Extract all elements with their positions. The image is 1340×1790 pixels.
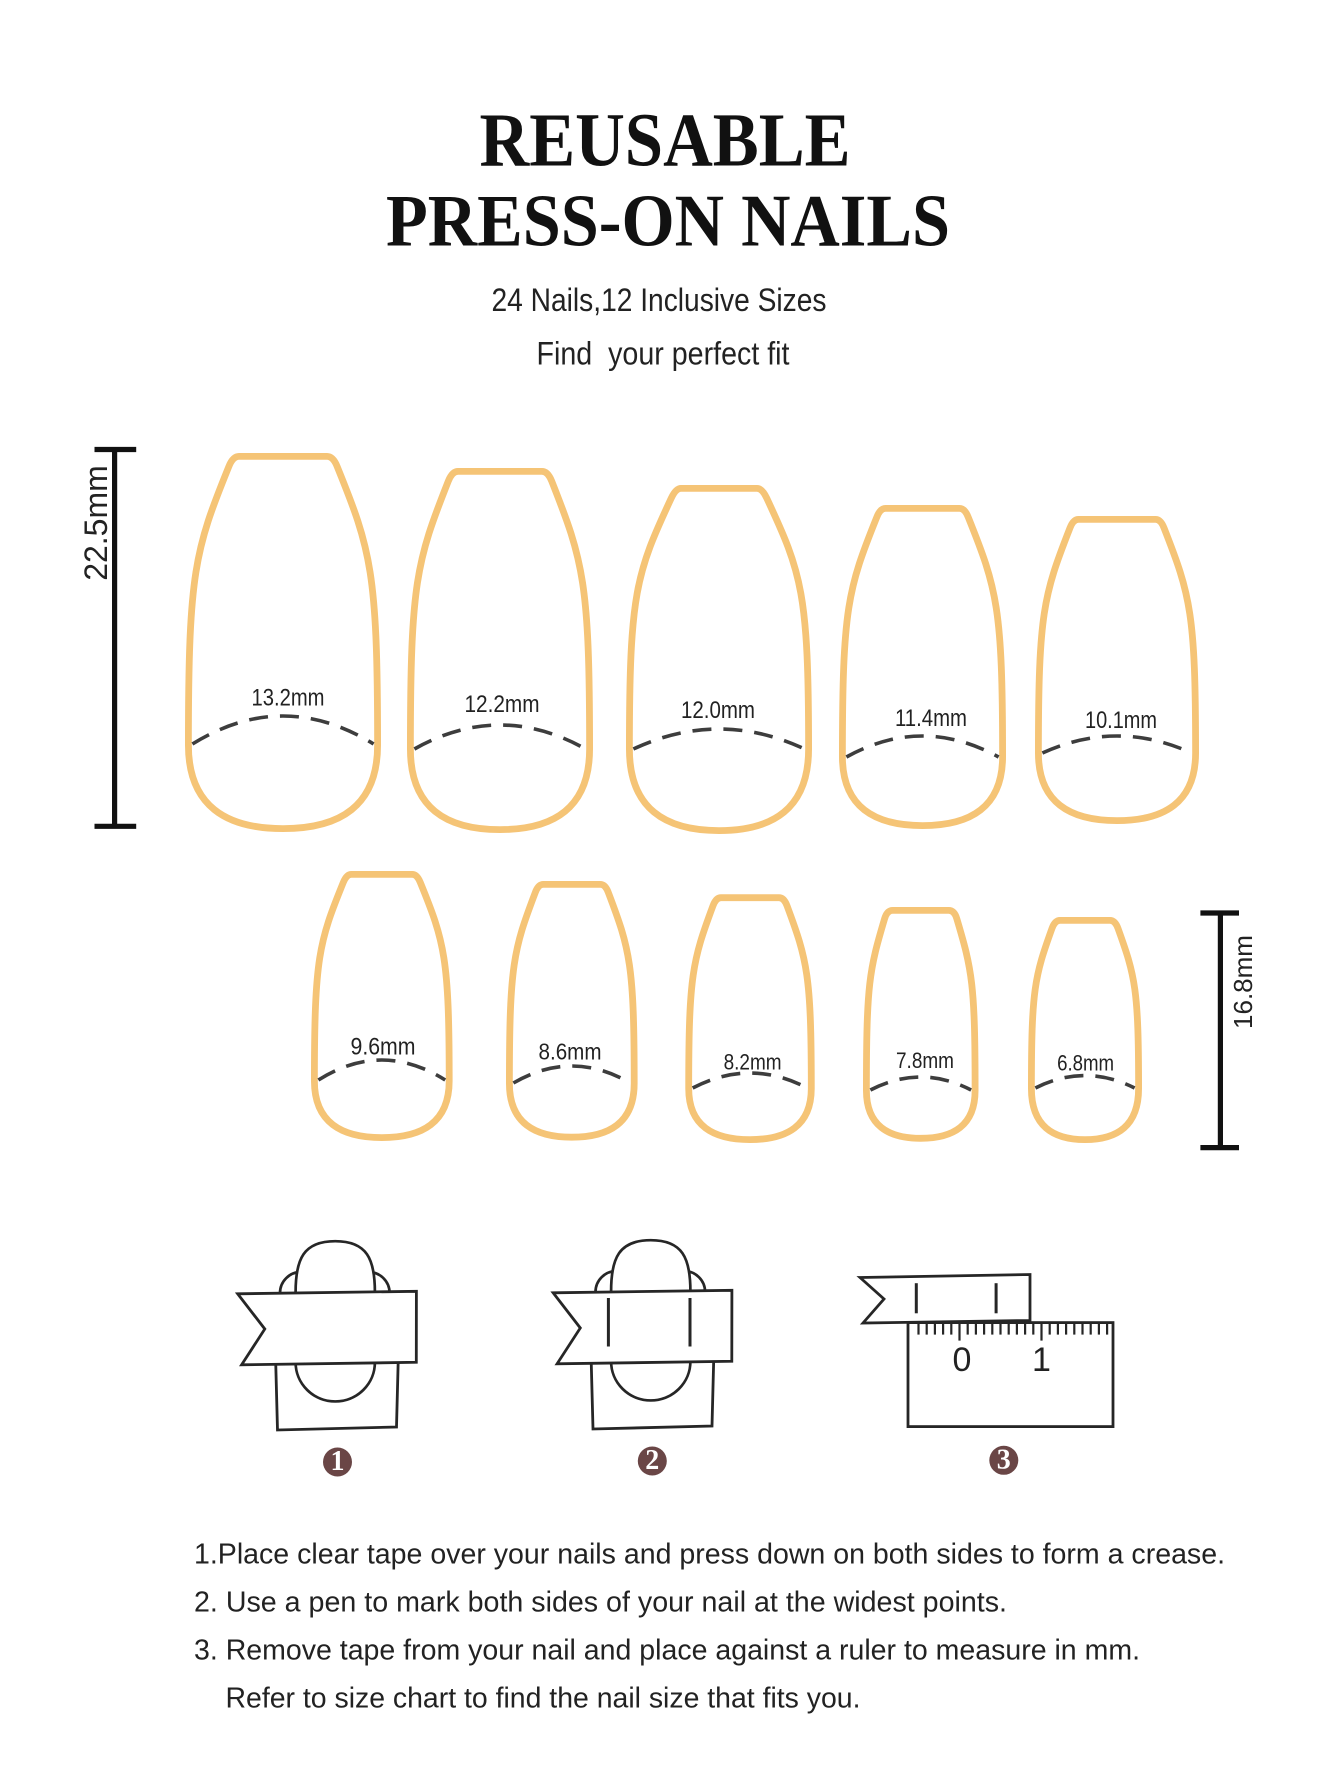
- svg-text:8.2mm: 8.2mm: [724, 1049, 782, 1074]
- svg-text:0: 0: [953, 1341, 972, 1379]
- svg-text:3: 3: [997, 1445, 1011, 1476]
- svg-text:10.1mm: 10.1mm: [1085, 707, 1157, 734]
- svg-text:3. Remove tape from your nail: 3. Remove tape from your nail and place …: [194, 1635, 1140, 1667]
- svg-text:9.6mm: 9.6mm: [351, 1034, 416, 1061]
- svg-text:1: 1: [331, 1446, 345, 1477]
- svg-text:22.5mm: 22.5mm: [78, 465, 114, 581]
- svg-text:PRESS-ON NAILS: PRESS-ON NAILS: [386, 181, 950, 263]
- svg-text:16.8mm: 16.8mm: [1228, 935, 1258, 1029]
- svg-text:2: 2: [645, 1445, 659, 1476]
- svg-text:12.0mm: 12.0mm: [681, 697, 755, 724]
- svg-text:8.6mm: 8.6mm: [539, 1038, 602, 1064]
- svg-text:24 Nails,12 Inclusive Sizes: 24 Nails,12 Inclusive Sizes: [492, 282, 827, 318]
- svg-text:11.4mm: 11.4mm: [895, 705, 967, 732]
- svg-text:Find your perfect fit: Find your perfect fit: [537, 335, 790, 371]
- svg-text:Refer to size chart to find th: Refer to size chart to find the nail siz…: [226, 1683, 861, 1715]
- svg-text:12.2mm: 12.2mm: [465, 691, 540, 718]
- svg-text:REUSABLE: REUSABLE: [480, 98, 851, 182]
- svg-text:13.2mm: 13.2mm: [252, 684, 325, 711]
- svg-text:1.Place clear tape over your n: 1.Place clear tape over your nails and p…: [194, 1539, 1225, 1571]
- svg-text:2. Use a pen to mark both side: 2. Use a pen to mark both sides of your …: [194, 1587, 1007, 1619]
- svg-text:6.8mm: 6.8mm: [1057, 1051, 1114, 1076]
- svg-text:7.8mm: 7.8mm: [896, 1048, 954, 1073]
- svg-text:1: 1: [1032, 1341, 1051, 1379]
